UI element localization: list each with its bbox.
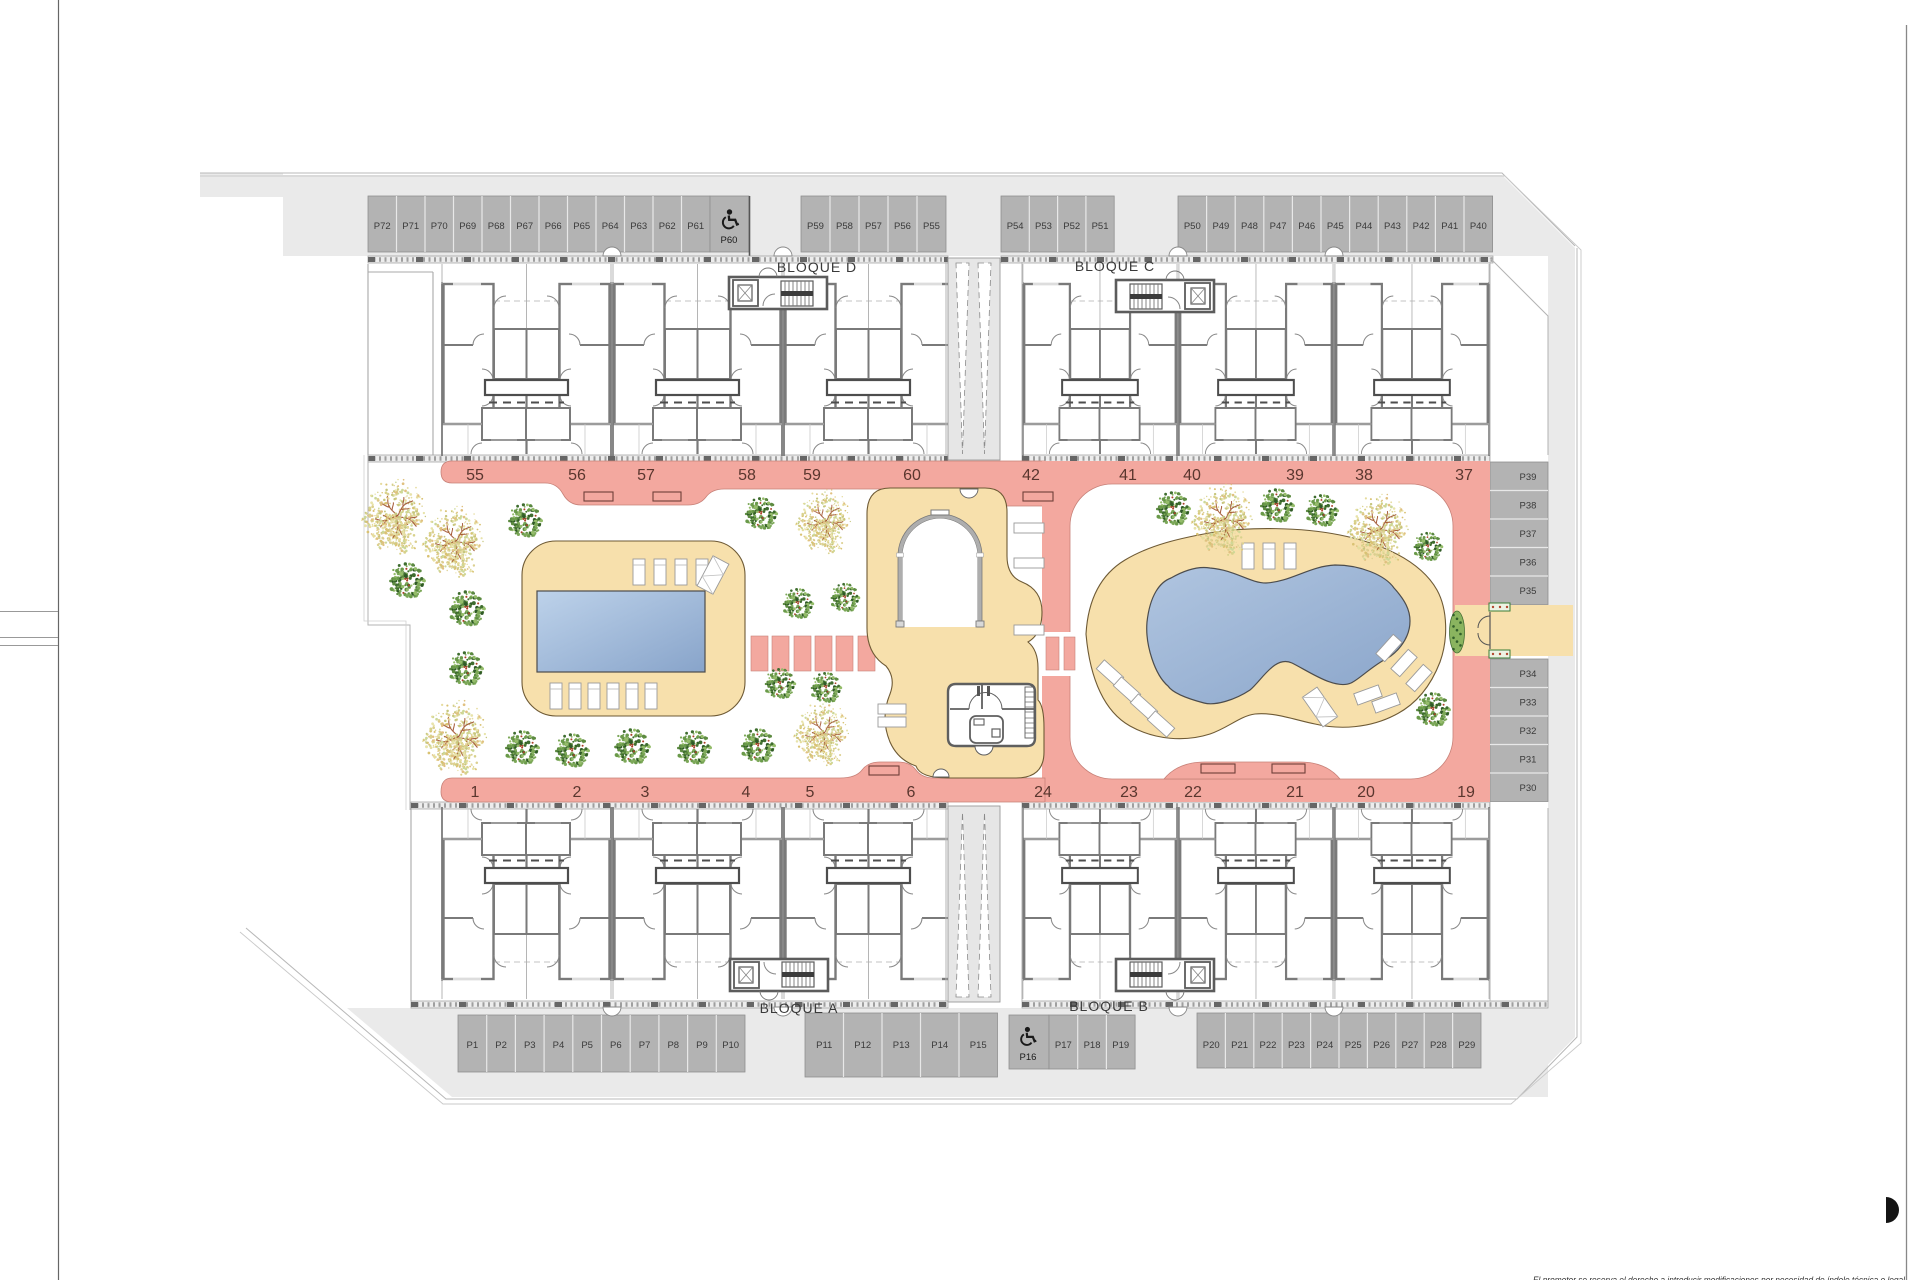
- svg-text:P24: P24: [1316, 1040, 1333, 1051]
- svg-text:P39: P39: [1520, 472, 1537, 483]
- svg-text:P27: P27: [1402, 1040, 1419, 1051]
- svg-text:P31: P31: [1520, 754, 1537, 765]
- svg-text:P52: P52: [1063, 221, 1080, 232]
- svg-text:P29: P29: [1458, 1040, 1475, 1051]
- svg-text:P51: P51: [1092, 221, 1109, 232]
- svg-text:P44: P44: [1355, 221, 1372, 232]
- svg-text:P6: P6: [610, 1040, 622, 1051]
- svg-text:40: 40: [1183, 467, 1201, 484]
- svg-text:P2: P2: [495, 1040, 507, 1051]
- svg-text:P28: P28: [1430, 1040, 1447, 1051]
- svg-text:P10: P10: [722, 1040, 739, 1051]
- svg-text:P53: P53: [1035, 221, 1052, 232]
- svg-text:P72: P72: [374, 221, 391, 232]
- svg-text:P3: P3: [524, 1040, 536, 1051]
- svg-text:P17: P17: [1055, 1040, 1072, 1051]
- svg-text:P67: P67: [516, 221, 533, 232]
- svg-text:P66: P66: [545, 221, 562, 232]
- svg-text:37: 37: [1455, 467, 1473, 484]
- svg-text:P54: P54: [1007, 221, 1024, 232]
- svg-text:55: 55: [466, 467, 484, 484]
- svg-text:P41: P41: [1441, 221, 1458, 232]
- svg-text:P20: P20: [1203, 1040, 1220, 1051]
- svg-text:P71: P71: [402, 221, 419, 232]
- svg-text:P7: P7: [639, 1040, 651, 1051]
- svg-text:20: 20: [1357, 784, 1375, 801]
- svg-text:2: 2: [573, 784, 582, 801]
- svg-text:P26: P26: [1373, 1040, 1390, 1051]
- svg-text:P58: P58: [836, 221, 853, 232]
- svg-text:BLOQUE D: BLOQUE D: [777, 259, 857, 275]
- svg-text:P23: P23: [1288, 1040, 1305, 1051]
- svg-text:P9: P9: [696, 1040, 708, 1051]
- svg-text:P43: P43: [1384, 221, 1401, 232]
- svg-text:P40: P40: [1470, 221, 1487, 232]
- svg-text:P12: P12: [854, 1040, 871, 1051]
- svg-text:5: 5: [806, 784, 815, 801]
- svg-text:P69: P69: [459, 221, 476, 232]
- svg-text:60: 60: [903, 467, 921, 484]
- svg-text:P48: P48: [1241, 221, 1258, 232]
- svg-text:6: 6: [907, 784, 916, 801]
- svg-text:57: 57: [637, 467, 655, 484]
- svg-text:P64: P64: [602, 221, 619, 232]
- svg-text:41: 41: [1119, 467, 1137, 484]
- svg-text:38: 38: [1355, 467, 1373, 484]
- svg-text:P63: P63: [630, 221, 647, 232]
- svg-text:P56: P56: [894, 221, 911, 232]
- svg-text:P13: P13: [893, 1040, 910, 1051]
- svg-text:4: 4: [742, 784, 751, 801]
- svg-text:19: 19: [1457, 784, 1475, 801]
- svg-text:P25: P25: [1345, 1040, 1362, 1051]
- svg-text:P57: P57: [865, 221, 882, 232]
- svg-text:P33: P33: [1520, 697, 1537, 708]
- svg-text:P35: P35: [1520, 586, 1537, 597]
- svg-text:P1: P1: [467, 1040, 479, 1051]
- svg-text:23: 23: [1120, 784, 1138, 801]
- svg-text:P37: P37: [1520, 529, 1537, 540]
- svg-text:P19: P19: [1112, 1040, 1129, 1051]
- svg-text:24: 24: [1034, 784, 1052, 801]
- svg-text:P62: P62: [659, 221, 676, 232]
- svg-text:P22: P22: [1260, 1040, 1277, 1051]
- svg-text:1: 1: [471, 784, 480, 801]
- svg-text:P42: P42: [1413, 221, 1430, 232]
- svg-text:39: 39: [1286, 467, 1304, 484]
- svg-text:P68: P68: [488, 221, 505, 232]
- svg-text:P45: P45: [1327, 221, 1344, 232]
- svg-text:3: 3: [641, 784, 650, 801]
- svg-text:56: 56: [568, 467, 586, 484]
- svg-text:P38: P38: [1520, 500, 1537, 511]
- svg-text:P60: P60: [721, 235, 738, 246]
- svg-text:P34: P34: [1520, 669, 1537, 680]
- svg-text:P61: P61: [687, 221, 704, 232]
- svg-text:P30: P30: [1520, 783, 1537, 794]
- svg-text:P55: P55: [923, 221, 940, 232]
- svg-text:P32: P32: [1520, 726, 1537, 737]
- svg-text:P8: P8: [667, 1040, 679, 1051]
- svg-text:21: 21: [1286, 784, 1304, 801]
- svg-text:P18: P18: [1084, 1040, 1101, 1051]
- svg-text:BLOQUE A: BLOQUE A: [760, 1000, 839, 1016]
- svg-text:P36: P36: [1520, 557, 1537, 568]
- svg-text:22: 22: [1184, 784, 1202, 801]
- svg-text:P49: P49: [1212, 221, 1229, 232]
- svg-text:El promotor se reserva el dere: El promotor se reserva el derecho a intr…: [1533, 1275, 1906, 1280]
- svg-text:P70: P70: [431, 221, 448, 232]
- svg-text:P5: P5: [581, 1040, 593, 1051]
- svg-text:P11: P11: [816, 1040, 832, 1051]
- svg-text:P14: P14: [931, 1040, 948, 1051]
- svg-text:P15: P15: [970, 1040, 987, 1051]
- svg-text:P47: P47: [1270, 221, 1287, 232]
- svg-text:BLOQUE C: BLOQUE C: [1075, 258, 1155, 274]
- svg-text:P46: P46: [1298, 221, 1315, 232]
- svg-text:BLOQUE B: BLOQUE B: [1069, 998, 1149, 1014]
- svg-text:58: 58: [738, 467, 756, 484]
- svg-text:P4: P4: [553, 1040, 565, 1051]
- svg-text:P21: P21: [1231, 1040, 1248, 1051]
- svg-text:P59: P59: [807, 221, 824, 232]
- svg-text:42: 42: [1022, 467, 1040, 484]
- svg-text:59: 59: [803, 467, 821, 484]
- svg-text:P50: P50: [1184, 221, 1201, 232]
- svg-text:P16: P16: [1020, 1052, 1037, 1063]
- svg-text:P65: P65: [573, 221, 590, 232]
